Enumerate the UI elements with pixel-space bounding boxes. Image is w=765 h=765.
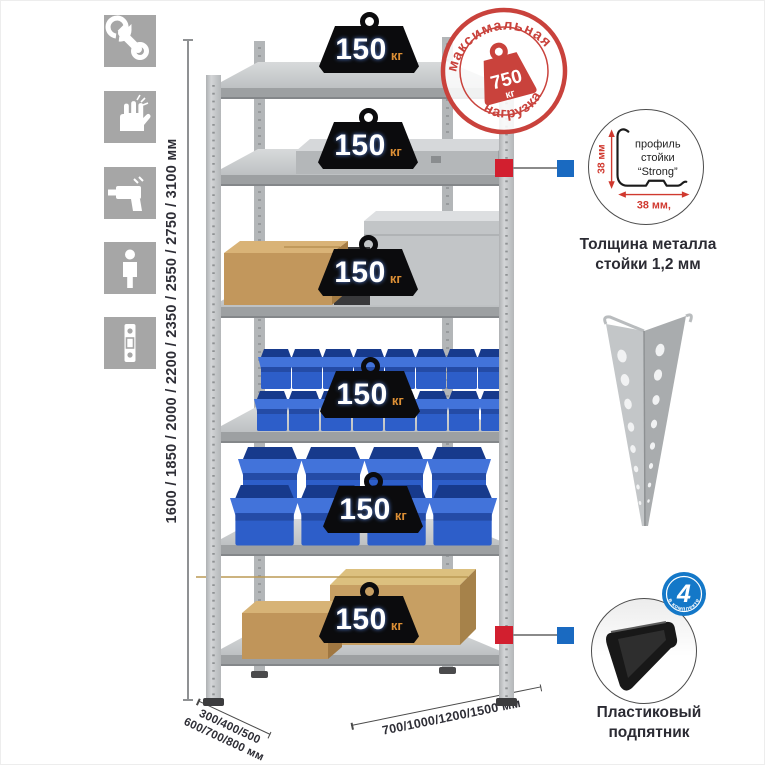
drill-icon (104, 167, 156, 219)
quantity-badge: 4 в комплекте (661, 571, 707, 617)
profile-caption: Толщина металла стойки 1,2 мм (568, 235, 728, 275)
foot-caption-line2: подпятник (569, 723, 729, 743)
profile-callout-circle: 38 мм 38 мм, профиль стойки “Strong” (588, 109, 704, 225)
foot-caption-line1: Пластиковый (569, 703, 729, 723)
corner-post-image (594, 304, 699, 534)
profile-label-2: стойки (641, 152, 675, 164)
profile-marker-blue (557, 160, 574, 177)
profile-dim-width: 38 мм, (637, 199, 671, 211)
height-dimension-line (187, 39, 189, 701)
profile-dim-height: 38 мм (597, 144, 608, 174)
shelf-load-badge-3: 150кг (318, 235, 418, 296)
foot-marker-red (495, 626, 513, 644)
shelf-load-badge-6: 150кг (319, 582, 419, 643)
badge-value: 4 (676, 580, 691, 608)
wrench-icon (104, 15, 156, 67)
shelf-load-badge-4: 150кг (320, 357, 420, 418)
shelf-load-badge-5: 150кг (323, 472, 423, 533)
person-height-icon (104, 242, 156, 294)
gloves-icon (104, 91, 156, 143)
profile-label-3: “Strong” (638, 166, 678, 178)
shelf-load-badge-1: 150кг (319, 12, 419, 73)
height-dimension-label: 1600 / 1850 / 2000 / 2200 / 2350 / 2550 … (165, 136, 179, 526)
profile-connector-line (513, 167, 558, 169)
foot-marker-blue (557, 627, 574, 644)
product-infographic: 1600 / 1850 / 2000 / 2200 / 2350 / 2550 … (0, 0, 765, 765)
profile-caption-line1: Толщина металла (568, 235, 728, 255)
foot-connector-line (513, 634, 558, 636)
profile-label-1: профиль (635, 138, 681, 150)
shelf-load-badge-2: 150кг (318, 108, 418, 169)
profile-marker-red (495, 159, 513, 177)
foot-caption: Пластиковый подпятник (569, 703, 729, 743)
profile-caption-line2: стойки 1,2 мм (568, 255, 728, 275)
perforated-post-icon (104, 317, 156, 369)
